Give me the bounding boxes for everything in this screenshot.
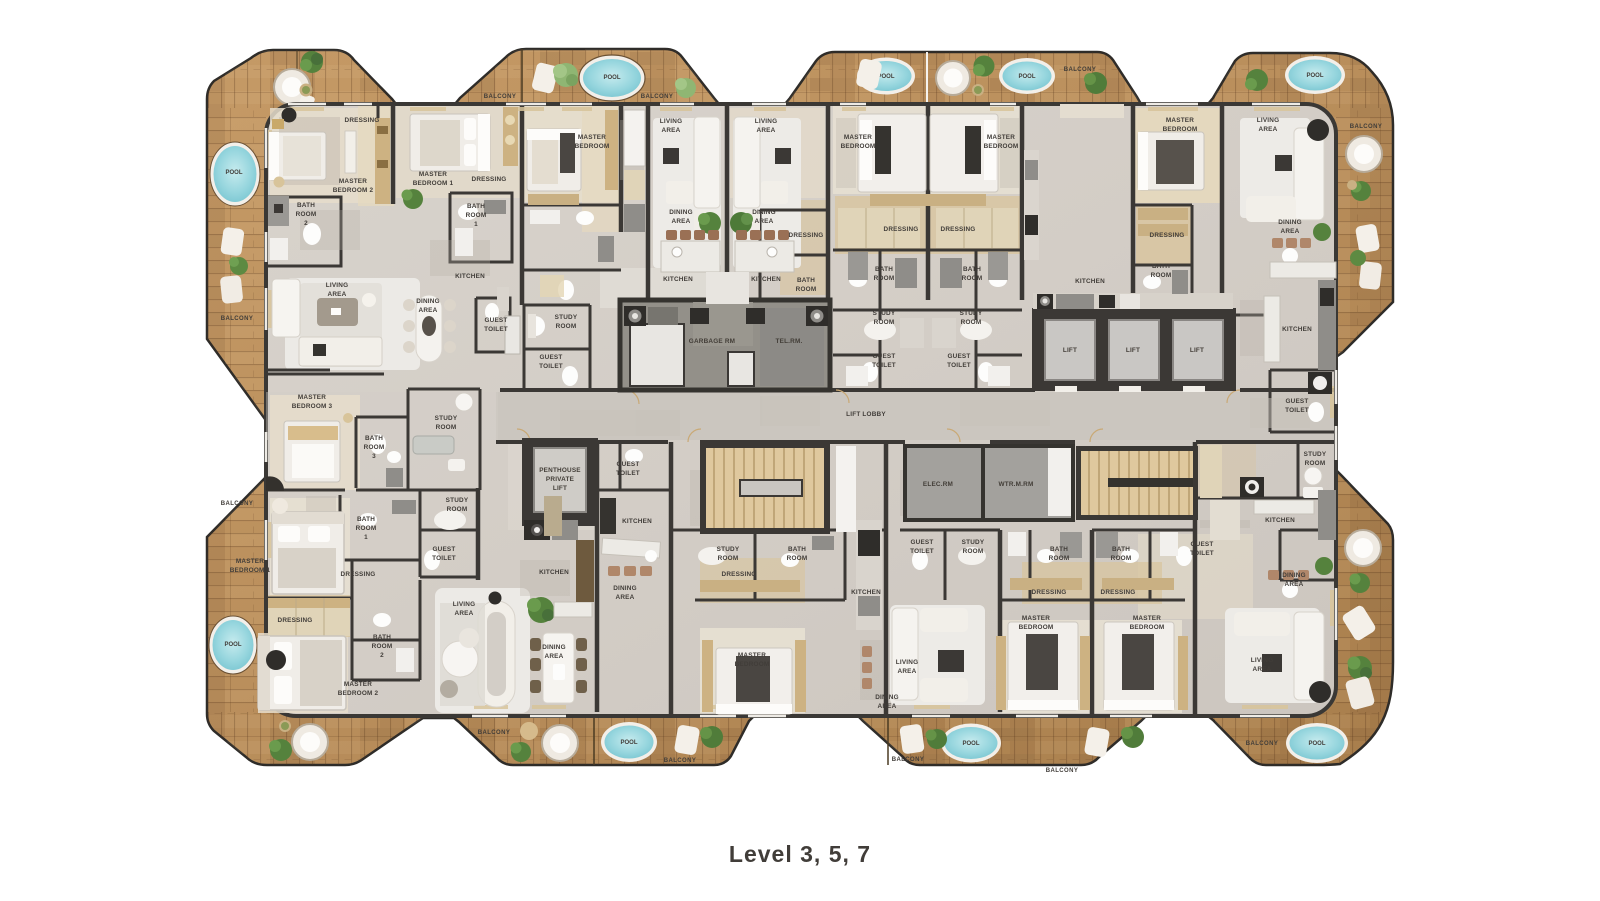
svg-text:DRESSING: DRESSING bbox=[1150, 232, 1185, 239]
svg-text:MASTER: MASTER bbox=[738, 652, 766, 659]
svg-text:AREA: AREA bbox=[672, 218, 691, 225]
svg-text:BATH: BATH bbox=[1050, 546, 1068, 553]
svg-text:AREA: AREA bbox=[545, 653, 564, 660]
svg-text:MASTER: MASTER bbox=[419, 171, 447, 178]
svg-text:LIVING: LIVING bbox=[1251, 657, 1274, 664]
svg-text:LIFT: LIFT bbox=[1063, 347, 1077, 354]
svg-text:2: 2 bbox=[304, 220, 308, 227]
svg-text:GUEST: GUEST bbox=[539, 354, 562, 361]
svg-text:GUEST: GUEST bbox=[1285, 398, 1308, 405]
svg-text:LIVING: LIVING bbox=[453, 601, 476, 608]
svg-text:TEL.RM.: TEL.RM. bbox=[776, 338, 803, 345]
svg-text:BATH: BATH bbox=[963, 266, 981, 273]
svg-text:DINING: DINING bbox=[669, 209, 693, 216]
svg-text:ROOM: ROOM bbox=[356, 525, 377, 532]
svg-text:GUEST: GUEST bbox=[947, 353, 970, 360]
svg-text:ROOM: ROOM bbox=[364, 444, 385, 451]
svg-text:AREA: AREA bbox=[1285, 581, 1304, 588]
svg-text:AREA: AREA bbox=[898, 668, 917, 675]
svg-text:DRESSING: DRESSING bbox=[722, 571, 757, 578]
svg-text:AREA: AREA bbox=[755, 218, 774, 225]
svg-text:POOL: POOL bbox=[603, 75, 620, 81]
svg-text:ROOM: ROOM bbox=[1049, 555, 1070, 562]
svg-text:BALCONY: BALCONY bbox=[1064, 67, 1096, 73]
svg-text:KITCHEN: KITCHEN bbox=[1265, 517, 1295, 524]
svg-text:KITCHEN: KITCHEN bbox=[455, 273, 485, 280]
svg-text:MASTER: MASTER bbox=[344, 681, 372, 688]
svg-text:ROOM: ROOM bbox=[962, 275, 983, 282]
svg-text:DINING: DINING bbox=[542, 644, 566, 651]
svg-text:POOL: POOL bbox=[877, 74, 894, 80]
svg-text:AREA: AREA bbox=[1259, 126, 1278, 133]
svg-text:LIVING: LIVING bbox=[660, 118, 683, 125]
svg-text:LIVING: LIVING bbox=[1257, 117, 1280, 124]
svg-text:DRESSING: DRESSING bbox=[278, 617, 313, 624]
svg-text:3: 3 bbox=[372, 453, 376, 460]
svg-text:GUEST: GUEST bbox=[616, 461, 639, 468]
svg-text:ROOM: ROOM bbox=[874, 319, 895, 326]
svg-text:DRESSING: DRESSING bbox=[345, 117, 380, 124]
svg-text:BALCONY: BALCONY bbox=[221, 501, 253, 507]
svg-text:ROOM: ROOM bbox=[787, 555, 808, 562]
svg-text:BEDROOM: BEDROOM bbox=[984, 143, 1019, 150]
svg-text:POOL: POOL bbox=[224, 642, 241, 648]
svg-text:PENTHOUSE: PENTHOUSE bbox=[539, 467, 581, 474]
svg-text:BALCONY: BALCONY bbox=[892, 757, 924, 763]
svg-text:ELEC.RM: ELEC.RM bbox=[923, 481, 953, 488]
svg-text:Level 3, 5, 7: Level 3, 5, 7 bbox=[729, 841, 871, 867]
svg-text:BATH: BATH bbox=[357, 516, 375, 523]
svg-text:LIFT: LIFT bbox=[553, 485, 567, 492]
svg-text:BATH: BATH bbox=[365, 435, 383, 442]
svg-text:ROOM: ROOM bbox=[1151, 272, 1172, 279]
svg-text:BEDROOM 2: BEDROOM 2 bbox=[338, 690, 379, 697]
svg-text:DINING: DINING bbox=[1282, 572, 1306, 579]
svg-text:DINING: DINING bbox=[1278, 219, 1302, 226]
svg-text:POOL: POOL bbox=[1306, 73, 1323, 79]
svg-text:ROOM: ROOM bbox=[556, 323, 577, 330]
svg-text:BATH: BATH bbox=[373, 634, 391, 641]
svg-text:ROOM: ROOM bbox=[1111, 555, 1132, 562]
svg-text:BEDROOM 1: BEDROOM 1 bbox=[413, 180, 454, 187]
svg-text:STUDY: STUDY bbox=[435, 415, 458, 422]
svg-text:BATH: BATH bbox=[788, 546, 806, 553]
svg-text:TOILET: TOILET bbox=[1285, 407, 1309, 414]
svg-text:LIVING: LIVING bbox=[326, 282, 349, 289]
svg-text:POOL: POOL bbox=[962, 741, 979, 747]
svg-text:WTR.M.RM: WTR.M.RM bbox=[999, 481, 1034, 488]
svg-text:AREA: AREA bbox=[1281, 228, 1300, 235]
svg-text:ROOM: ROOM bbox=[961, 319, 982, 326]
svg-text:BEDROOM: BEDROOM bbox=[575, 143, 610, 150]
svg-text:DRESSING: DRESSING bbox=[789, 232, 824, 239]
svg-text:TOILET: TOILET bbox=[872, 362, 896, 369]
svg-text:MASTER: MASTER bbox=[298, 394, 326, 401]
svg-text:DRESSING: DRESSING bbox=[1032, 589, 1067, 596]
svg-text:KITCHEN: KITCHEN bbox=[851, 589, 881, 596]
svg-text:MASTER: MASTER bbox=[1022, 615, 1050, 622]
svg-text:2: 2 bbox=[380, 652, 384, 659]
svg-text:1: 1 bbox=[364, 534, 368, 541]
svg-text:MASTER: MASTER bbox=[987, 134, 1015, 141]
svg-text:TOILET: TOILET bbox=[947, 362, 971, 369]
svg-text:BEDROOM 3: BEDROOM 3 bbox=[292, 403, 333, 410]
svg-text:TOILET: TOILET bbox=[539, 363, 563, 370]
svg-text:MASTER: MASTER bbox=[339, 178, 367, 185]
svg-text:BALCONY: BALCONY bbox=[664, 758, 696, 764]
svg-text:DINING: DINING bbox=[613, 585, 637, 592]
svg-text:ROOM: ROOM bbox=[796, 286, 817, 293]
svg-text:GUEST: GUEST bbox=[910, 539, 933, 546]
svg-text:BEDROOM: BEDROOM bbox=[1130, 624, 1165, 631]
svg-text:DINING: DINING bbox=[875, 694, 899, 701]
svg-text:BEDROOM: BEDROOM bbox=[1019, 624, 1054, 631]
svg-text:MASTER: MASTER bbox=[1166, 117, 1194, 124]
svg-text:DRESSING: DRESSING bbox=[1101, 589, 1136, 596]
svg-text:BATH: BATH bbox=[1112, 546, 1130, 553]
svg-text:AREA: AREA bbox=[455, 610, 474, 617]
svg-text:AREA: AREA bbox=[1253, 666, 1272, 673]
svg-text:STUDY: STUDY bbox=[717, 546, 740, 553]
svg-text:STUDY: STUDY bbox=[873, 310, 896, 317]
svg-text:AREA: AREA bbox=[328, 291, 347, 298]
svg-text:DINING: DINING bbox=[752, 209, 776, 216]
svg-text:KITCHEN: KITCHEN bbox=[539, 569, 569, 576]
svg-text:BALCONY: BALCONY bbox=[641, 94, 673, 100]
svg-text:POOL: POOL bbox=[1018, 74, 1035, 80]
svg-text:BALCONY: BALCONY bbox=[478, 730, 510, 736]
svg-text:ROOM: ROOM bbox=[372, 643, 393, 650]
svg-text:DRESSING: DRESSING bbox=[884, 226, 919, 233]
svg-text:LIFT LOBBY: LIFT LOBBY bbox=[846, 411, 886, 418]
svg-text:MASTER: MASTER bbox=[236, 558, 264, 565]
svg-text:BALCONY: BALCONY bbox=[1046, 768, 1078, 774]
svg-text:GARBAGE RM: GARBAGE RM bbox=[689, 338, 735, 345]
svg-text:BEDROOM 1: BEDROOM 1 bbox=[230, 567, 271, 574]
svg-text:ROOM: ROOM bbox=[436, 424, 457, 431]
svg-text:ROOM: ROOM bbox=[1305, 460, 1326, 467]
svg-text:BATH: BATH bbox=[467, 203, 485, 210]
svg-text:BATH: BATH bbox=[875, 266, 893, 273]
svg-text:AREA: AREA bbox=[878, 703, 897, 710]
svg-text:TOILET: TOILET bbox=[484, 326, 508, 333]
svg-text:MASTER: MASTER bbox=[1133, 615, 1161, 622]
svg-text:TOILET: TOILET bbox=[1190, 550, 1214, 557]
svg-text:KITCHEN: KITCHEN bbox=[622, 518, 652, 525]
svg-text:BEDROOM: BEDROOM bbox=[841, 143, 876, 150]
svg-text:KITCHEN: KITCHEN bbox=[1282, 326, 1312, 333]
svg-text:ROOM: ROOM bbox=[466, 212, 487, 219]
svg-text:BEDROOM: BEDROOM bbox=[1163, 126, 1198, 133]
svg-text:ROOM: ROOM bbox=[874, 275, 895, 282]
svg-text:ROOM: ROOM bbox=[718, 555, 739, 562]
svg-text:POOL: POOL bbox=[1308, 741, 1325, 747]
svg-text:DINING: DINING bbox=[416, 298, 440, 305]
svg-text:STUDY: STUDY bbox=[555, 314, 578, 321]
svg-text:BALCONY: BALCONY bbox=[484, 94, 516, 100]
svg-text:AREA: AREA bbox=[662, 127, 681, 134]
svg-text:BALCONY: BALCONY bbox=[221, 316, 253, 322]
svg-text:KITCHEN: KITCHEN bbox=[751, 276, 781, 283]
svg-text:STUDY: STUDY bbox=[960, 310, 983, 317]
svg-text:ROOM: ROOM bbox=[296, 211, 317, 218]
svg-text:1: 1 bbox=[474, 221, 478, 228]
svg-text:MASTER: MASTER bbox=[844, 134, 872, 141]
svg-text:DRESSING: DRESSING bbox=[941, 226, 976, 233]
svg-text:BALCONY: BALCONY bbox=[1246, 741, 1278, 747]
svg-text:ROOM: ROOM bbox=[447, 506, 468, 513]
svg-text:BALCONY: BALCONY bbox=[1350, 124, 1382, 130]
svg-text:AREA: AREA bbox=[419, 307, 438, 314]
svg-text:MASTER: MASTER bbox=[578, 134, 606, 141]
svg-text:STUDY: STUDY bbox=[446, 497, 469, 504]
svg-text:BATH: BATH bbox=[297, 202, 315, 209]
svg-text:DRESSING: DRESSING bbox=[341, 571, 376, 578]
svg-text:TOILET: TOILET bbox=[616, 470, 640, 477]
svg-text:POOL: POOL bbox=[225, 170, 242, 176]
svg-text:BATH: BATH bbox=[1152, 263, 1170, 270]
svg-text:AREA: AREA bbox=[757, 127, 776, 134]
svg-text:KITCHEN: KITCHEN bbox=[1075, 278, 1105, 285]
svg-text:STUDY: STUDY bbox=[962, 539, 985, 546]
svg-text:BATH: BATH bbox=[797, 277, 815, 284]
svg-text:ROOM: ROOM bbox=[963, 548, 984, 555]
svg-text:GUEST: GUEST bbox=[872, 353, 895, 360]
svg-text:LIVING: LIVING bbox=[896, 659, 919, 666]
svg-text:GUEST: GUEST bbox=[1190, 541, 1213, 548]
svg-text:LIVING: LIVING bbox=[755, 118, 778, 125]
svg-text:TOILET: TOILET bbox=[910, 548, 934, 555]
svg-text:TOILET: TOILET bbox=[432, 555, 456, 562]
svg-text:KITCHEN: KITCHEN bbox=[663, 276, 693, 283]
svg-text:STUDY: STUDY bbox=[1304, 451, 1327, 458]
svg-text:BEDROOM: BEDROOM bbox=[735, 661, 770, 668]
svg-text:POOL: POOL bbox=[620, 740, 637, 746]
svg-text:GUEST: GUEST bbox=[432, 546, 455, 553]
svg-text:BEDROOM 2: BEDROOM 2 bbox=[333, 187, 374, 194]
svg-text:PRIVATE: PRIVATE bbox=[546, 476, 575, 483]
svg-text:GUEST: GUEST bbox=[484, 317, 507, 324]
svg-text:LIFT: LIFT bbox=[1190, 347, 1204, 354]
svg-text:AREA: AREA bbox=[616, 594, 635, 601]
svg-text:DRESSING: DRESSING bbox=[472, 176, 507, 183]
svg-text:LIFT: LIFT bbox=[1126, 347, 1140, 354]
